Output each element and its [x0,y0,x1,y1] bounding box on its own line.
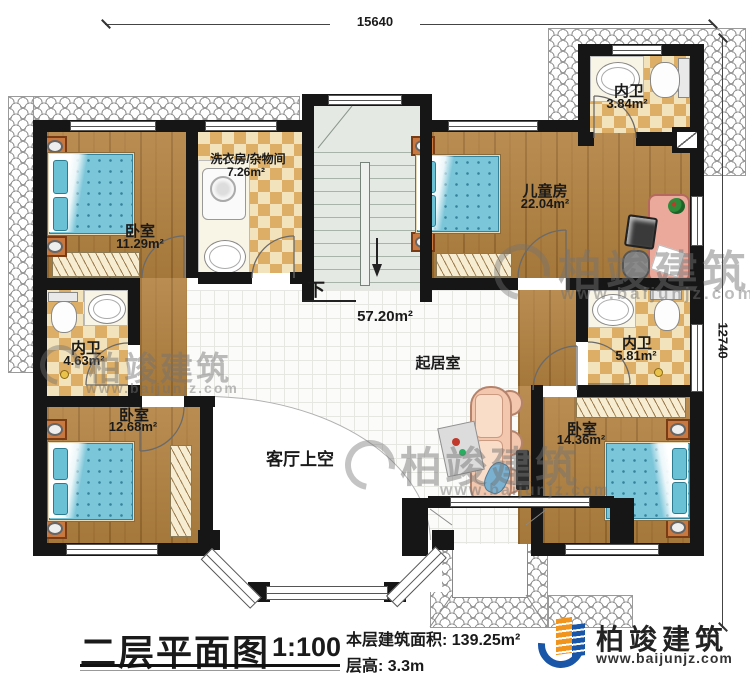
wall [186,120,198,278]
room-area-living: 57.20m² [357,308,413,325]
wall [33,278,140,290]
wall [578,132,594,146]
laundry-sink [204,240,246,274]
corner-column [672,127,702,153]
room-label-living: 起居室 [415,352,460,373]
bath-w-sink [88,294,126,324]
floor-drain [654,368,663,377]
window [328,95,402,105]
brand-website: www.baijunjz.com [596,650,733,666]
toilet-bowl [51,301,77,333]
pillow [672,448,687,480]
window [565,544,659,555]
pillow [672,482,687,514]
brand-logo-tower-blue [572,623,585,657]
wall [578,44,590,146]
pillow [53,160,68,194]
title-underline-2 [80,670,340,671]
window [612,45,662,55]
roof-left-band [8,96,34,373]
title-underline [80,664,340,667]
pillow [53,483,68,515]
wall [290,272,302,284]
stair-rail [360,162,370,286]
room-area-bedroom-sw: 12.68m² [109,419,157,434]
toilet-bowl [650,62,680,98]
sofa-cushion [475,394,503,438]
bay-post [198,530,220,550]
closet-bedroom-se [576,397,686,418]
wall [200,396,213,536]
room-area-bath-e: 5.81m² [615,348,656,363]
plan-scale: 1:100 [272,632,341,663]
floor-stair-landing [314,106,420,154]
floor-area-text: 本层建筑面积: 139.25m² [346,626,520,650]
floor-height-text: 层高: 3.3m [346,652,424,676]
washer-door [210,176,236,202]
roof-top-band [8,96,300,123]
porch-post [402,498,428,556]
closet-bedroom-sw [170,445,192,537]
porch-post [610,498,634,548]
room-area-kids: 22.04m² [521,196,569,211]
stairs-down-label: 下 [307,276,325,302]
window [66,544,158,555]
wall [420,94,432,302]
watermark-url: www.baijunjz.com [86,380,239,396]
wall [198,272,252,284]
wall [33,120,47,556]
stairs-down-underline [302,300,356,302]
window [70,121,156,131]
window [205,121,277,131]
wall [128,290,140,345]
room-area-bath-ne: 3.84m² [606,96,647,111]
pillow [53,197,68,231]
nightstand [666,419,690,440]
bay-window [266,586,388,600]
floor-plan: 卧室 11.29m² 洗衣房/杂物间 7.26m² 儿童房 22.04m² 内卫… [0,0,750,684]
room-label-void: 客厅上空 [266,445,334,470]
dimension-top-value: 15640 [330,14,420,29]
plant-icon [668,198,685,214]
watermark-url: www.baijunjz.com [440,482,610,500]
window [448,121,538,131]
pillow [53,448,68,480]
dimension-right-value: 12740 [716,301,731,381]
wall [577,385,704,397]
plan-title: 二层平面图 [80,624,270,676]
room-area-bedroom-nw: 11.29m² [116,236,164,251]
window [691,324,703,392]
brand-logo-tower-orange [556,617,572,655]
room-area-laundry: 7.26m² [227,165,265,179]
floor-corridor-east [518,290,576,386]
wall [302,94,314,302]
